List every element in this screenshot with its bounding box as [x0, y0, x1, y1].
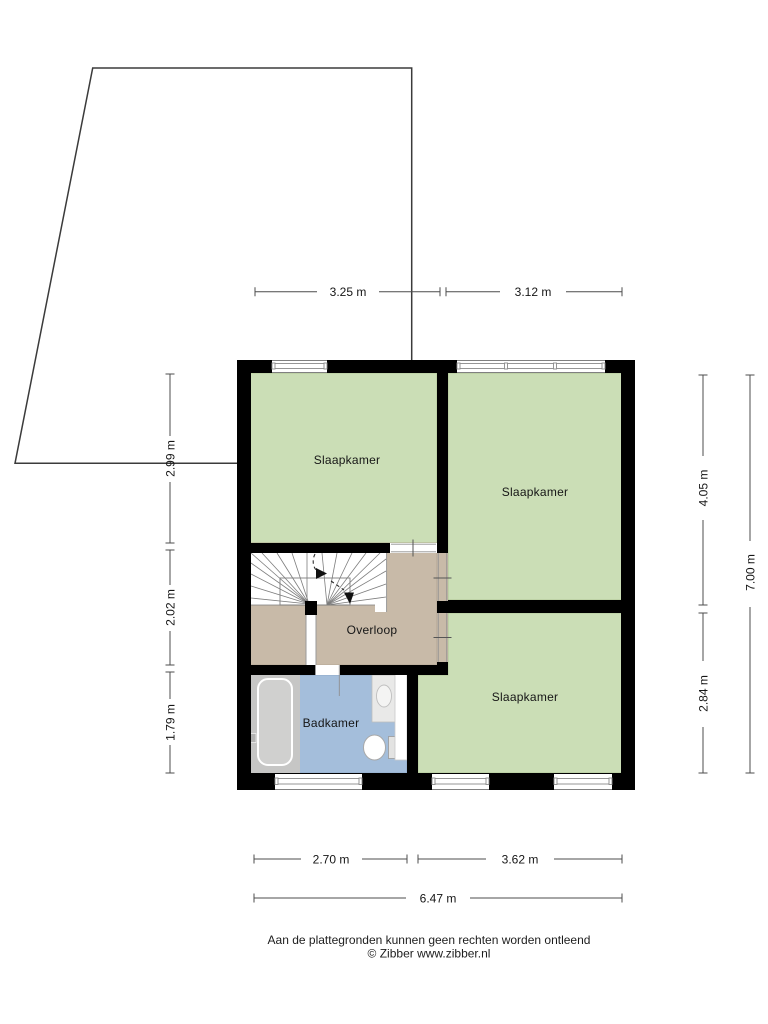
window-top-left-bedroom: [272, 361, 327, 373]
dim-label-top-1: 3.25 m: [330, 285, 367, 299]
dim-left-3: 1.79 m: [163, 672, 177, 773]
bathtub: [258, 679, 292, 765]
footer-disclaimer: Aan de plattegronden kunnen geen rechten…: [268, 933, 591, 947]
wall-badkamer-top-a: [237, 665, 315, 675]
dim-label-right-2: 2.84 m: [696, 675, 710, 712]
washbasin: [377, 685, 392, 707]
dim-right-3: 7.00 m: [743, 375, 757, 773]
dim-left-1: 2.99 m: [163, 374, 177, 543]
wall-badkamer-top-b: [340, 665, 448, 675]
dim-left-2: 2.02 m: [163, 550, 177, 665]
label-overloop: Overloop: [347, 623, 398, 637]
floorplan-canvas: 3.25 m 3.12 m 2.99 m 2.02 m: [0, 0, 768, 1024]
dim-label-left-3: 1.79 m: [163, 704, 177, 741]
dim-label-bottom-2: 3.62 m: [502, 852, 539, 866]
wall-overloop-right-a: [437, 543, 448, 553]
dim-label-bottom-1: 2.70 m: [313, 852, 350, 866]
footer-copyright: © Zibber www.zibber.nl: [368, 947, 491, 961]
dim-bottom-total: 6.47 m: [254, 891, 622, 905]
window-top-right-bedroom: [457, 361, 605, 373]
floorplan-page: 3.25 m 3.12 m 2.99 m 2.02 m: [0, 0, 768, 1024]
badkamer-right-door: [395, 672, 407, 760]
dim-bottom-1: 2.70 m: [254, 852, 407, 866]
dim-label-left-1: 2.99 m: [163, 440, 177, 477]
label-badkamer: Badkamer: [303, 716, 360, 730]
footer: Aan de plattegronden kunnen geen rechten…: [268, 933, 591, 961]
label-slaapkamer-top-left: Slaapkamer: [314, 453, 381, 467]
wall-left: [237, 360, 251, 790]
wall-right: [621, 360, 635, 790]
window-bottom-bedroom-1: [432, 774, 489, 790]
stairs-floor: [251, 553, 388, 605]
wall-overloop-right-b: [437, 601, 448, 613]
wall-right-bedrooms-divider: [448, 600, 622, 613]
dim-label-right-1: 4.05 m: [696, 470, 710, 507]
stair-bottom-door: [306, 615, 317, 665]
window-badkamer: [275, 774, 362, 790]
dim-bottom-2: 3.62 m: [418, 852, 622, 866]
wall-badkamer-right: [407, 675, 418, 773]
stairs-void-strip: [375, 553, 387, 612]
label-slaapkamer-bottom-right: Slaapkamer: [492, 690, 559, 704]
dim-right-2: 2.84 m: [696, 613, 710, 773]
dim-right-1: 4.05 m: [696, 375, 710, 605]
dim-label-top-2: 3.12 m: [515, 285, 552, 299]
dim-label-bottom-total: 6.47 m: [420, 891, 457, 905]
toilet-bowl: [364, 735, 386, 760]
dim-label-left-2: 2.02 m: [163, 589, 177, 626]
dim-label-right-3: 7.00 m: [743, 554, 757, 591]
label-slaapkamer-top-right: Slaapkamer: [502, 485, 569, 499]
bathtub-faucet: [251, 734, 257, 743]
wall-overloop-top: [250, 543, 390, 553]
wall-bedrooms-divider: [437, 373, 448, 543]
dim-top-2: 3.12 m: [446, 285, 622, 299]
wall-stair-stub: [305, 601, 317, 615]
window-bottom-bedroom-2: [554, 774, 612, 790]
staircase: [251, 553, 388, 612]
